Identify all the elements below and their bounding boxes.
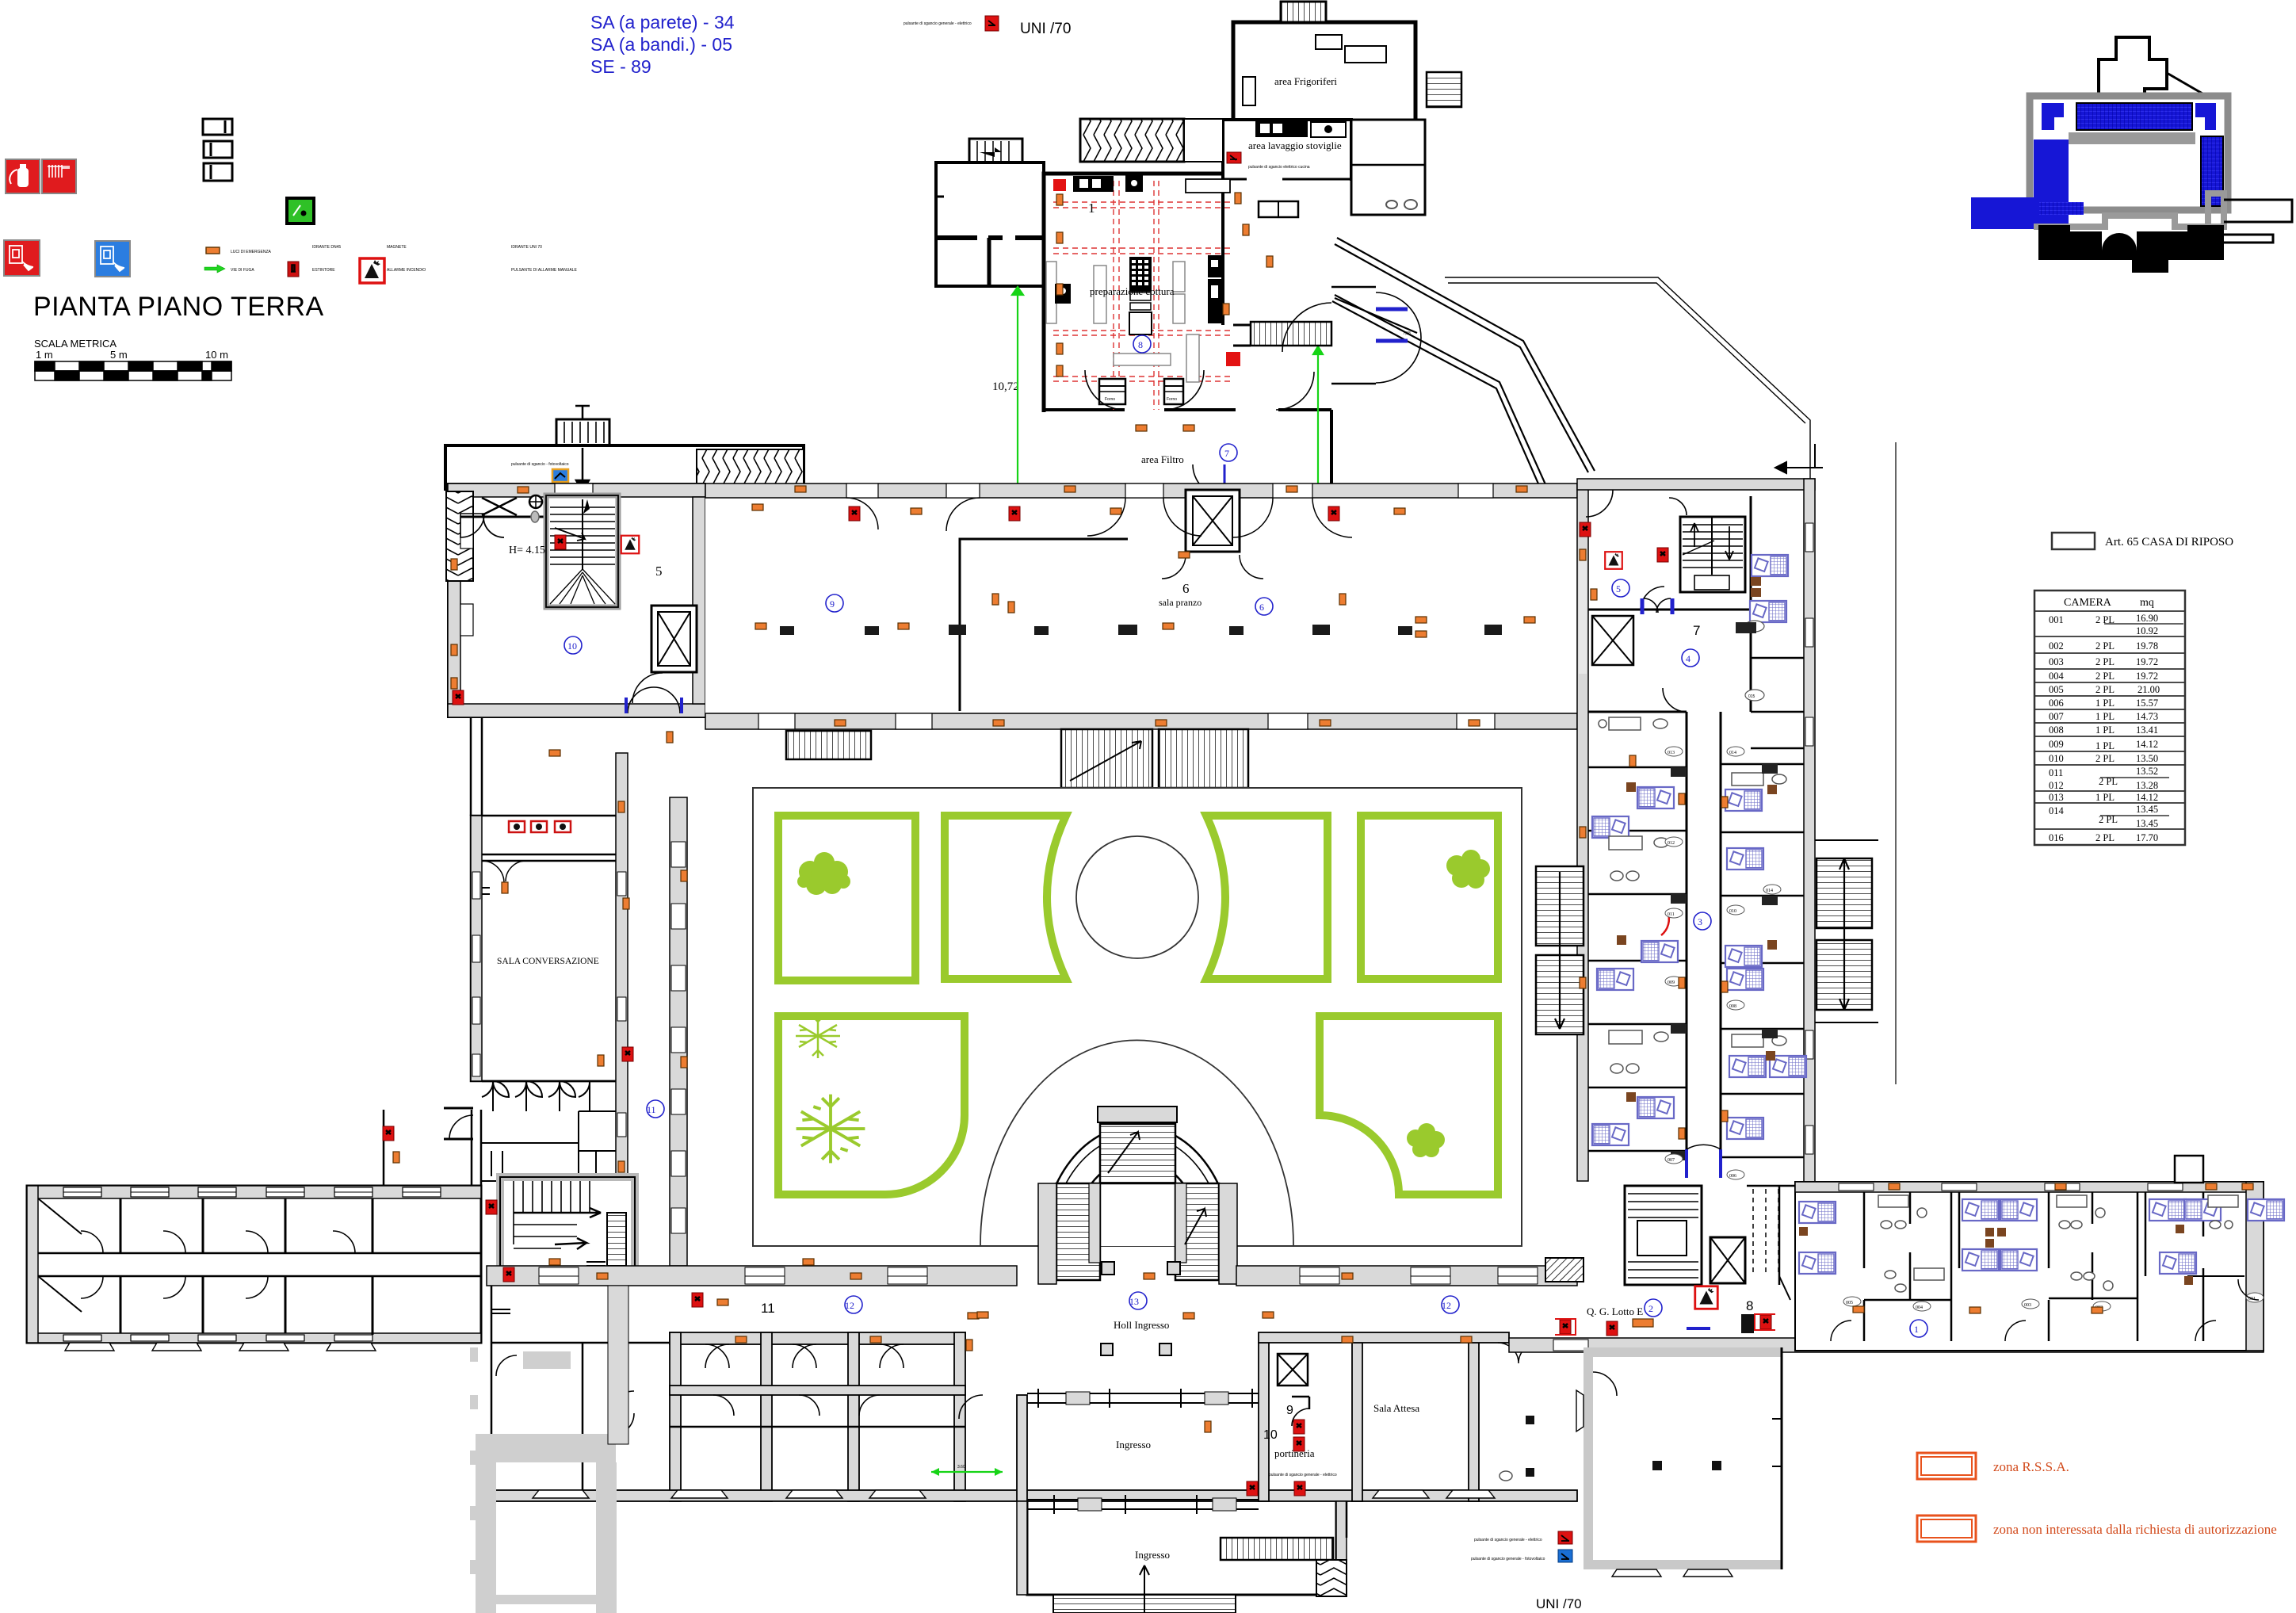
svg-text:VIE DI FUGA: VIE DI FUGA: [231, 268, 254, 273]
svg-text:12: 12: [1442, 1300, 1451, 1311]
svg-text:007: 007: [2049, 711, 2064, 722]
svg-text:Ingresso: Ingresso: [1116, 1439, 1151, 1451]
svg-text:MAGNETE: MAGNETE: [387, 245, 407, 250]
svg-text:003: 003: [2024, 1303, 2031, 1308]
svg-text:pulsante di sgancio - fotovolt: pulsante di sgancio - fotovoltaico: [511, 462, 569, 467]
svg-text:8: 8: [1138, 339, 1143, 350]
svg-text:2 PL: 2 PL: [2095, 684, 2115, 695]
svg-text:17.70: 17.70: [2136, 832, 2158, 843]
svg-text:012: 012: [2049, 780, 2064, 791]
svg-text:007: 007: [1668, 1158, 1675, 1163]
svg-text:011: 011: [1668, 912, 1675, 917]
svg-text:9: 9: [1286, 1404, 1293, 1417]
svg-text:011: 011: [2049, 767, 2063, 778]
svg-text:2 PL: 2 PL: [2095, 640, 2115, 652]
svg-text:SA (a bandi.) - 05: SA (a bandi.) - 05: [590, 34, 732, 55]
svg-text:009: 009: [2049, 739, 2064, 750]
svg-text:SE - 89: SE - 89: [590, 56, 651, 77]
svg-text:8: 8: [1746, 1298, 1753, 1313]
svg-text:003: 003: [2049, 656, 2064, 667]
svg-text:015: 015: [1748, 694, 1755, 699]
svg-text:pulsante di sgancio generale -: pulsante di sgancio generale - fotovolta…: [1471, 1557, 1545, 1561]
svg-text:6: 6: [1182, 581, 1190, 596]
svg-text:11: 11: [761, 1301, 775, 1316]
svg-text:3.60: 3.60: [957, 1465, 965, 1470]
svg-text:5: 5: [655, 564, 663, 579]
svg-text:LUCI DI EMERGENZA: LUCI DI EMERGENZA: [231, 250, 272, 254]
svg-text:9: 9: [830, 598, 835, 610]
svg-text:014: 014: [1766, 889, 1773, 893]
svg-text:2 PL: 2 PL: [2099, 814, 2118, 825]
svg-text:ALLARME INCENDIO: ALLARME INCENDIO: [387, 268, 426, 273]
svg-text:14.73: 14.73: [2136, 711, 2158, 722]
svg-text:5: 5: [1616, 583, 1621, 594]
svg-text:1 PL: 1 PL: [2095, 724, 2115, 736]
svg-text:1 PL: 1 PL: [2095, 740, 2115, 751]
svg-text:19.72: 19.72: [2136, 656, 2158, 667]
svg-text:5 m: 5 m: [110, 349, 128, 361]
svg-text:ESTINTORE: ESTINTORE: [312, 268, 335, 273]
svg-text:CAMERA: CAMERA: [2064, 597, 2112, 609]
svg-text:012: 012: [1668, 841, 1675, 846]
svg-text:pulsante di sgancio elettrico: pulsante di sgancio elettrico cucina: [1248, 165, 1310, 170]
svg-text:Holl Ingresso: Holl Ingresso: [1114, 1319, 1169, 1331]
svg-text:2 PL: 2 PL: [2095, 832, 2115, 843]
svg-text:1: 1: [1914, 1324, 1919, 1335]
svg-text:zona non interessata dalla ric: zona non interessata dalla richiesta di …: [1993, 1522, 2277, 1537]
svg-text:14.12: 14.12: [2136, 792, 2158, 803]
svg-text:pulsante di sgancio generale -: pulsante di sgancio generale - elettrico: [904, 21, 972, 26]
svg-text:004: 004: [1916, 1305, 1923, 1310]
svg-text:7: 7: [1224, 448, 1229, 459]
svg-text:PIANTA PIANO TERRA: PIANTA PIANO TERRA: [33, 292, 324, 322]
svg-text:area Frigoriferi: area Frigoriferi: [1274, 75, 1337, 87]
svg-text:19.78: 19.78: [2136, 640, 2158, 652]
svg-text:009: 009: [1668, 980, 1675, 985]
svg-text:13.50: 13.50: [2136, 753, 2158, 764]
svg-text:14.12: 14.12: [2136, 739, 2158, 750]
svg-text:1 PL: 1 PL: [2095, 698, 2115, 709]
svg-text:010: 010: [1729, 909, 1736, 914]
svg-text:2 PL: 2 PL: [2095, 614, 2115, 625]
svg-text:SA (a parete) - 34: SA (a parete) - 34: [590, 12, 735, 32]
svg-text:sala pranzo: sala pranzo: [1159, 597, 1201, 608]
svg-text:13.41: 13.41: [2136, 724, 2158, 736]
svg-text:UNI /70: UNI /70: [1536, 1596, 1582, 1611]
svg-text:1 m: 1 m: [36, 349, 53, 361]
svg-text:Art. 65 CASA DI RIPOSO: Art. 65 CASA DI RIPOSO: [2105, 536, 2233, 548]
svg-text:10 m: 10 m: [205, 349, 228, 361]
svg-text:13.45: 13.45: [2136, 818, 2158, 829]
svg-text:002: 002: [2049, 640, 2064, 652]
svg-text:preparazione cottura: preparazione cottura: [1090, 285, 1175, 297]
svg-text:13.45: 13.45: [2136, 804, 2158, 815]
svg-text:PULSANTE DI ALLARME MANUALE: PULSANTE DI ALLARME MANUALE: [511, 268, 577, 273]
svg-text:Sala Attesa: Sala Attesa: [1373, 1402, 1419, 1414]
svg-text:3: 3: [1698, 916, 1702, 927]
svg-text:mq: mq: [2140, 597, 2154, 609]
svg-text:7: 7: [1693, 623, 1700, 638]
svg-text:13.52: 13.52: [2136, 766, 2158, 777]
svg-text:area Filtro: area Filtro: [1141, 453, 1184, 465]
svg-text:10: 10: [1263, 1428, 1278, 1442]
svg-text:008: 008: [2049, 724, 2064, 736]
svg-text:1 PL: 1 PL: [2095, 792, 2115, 803]
svg-text:11: 11: [647, 1104, 656, 1115]
svg-text:008: 008: [1729, 1004, 1736, 1009]
svg-text:IDRANTE UNI 70: IDRANTE UNI 70: [511, 245, 542, 250]
svg-text:005: 005: [1846, 1301, 1853, 1305]
svg-text:Forno: Forno: [1105, 397, 1115, 402]
svg-text:006: 006: [1729, 1174, 1736, 1179]
svg-text:pulsante di sgancio generale -: pulsante di sgancio generale - elettrico: [1474, 1538, 1542, 1542]
svg-text:2 PL: 2 PL: [2095, 671, 2115, 682]
svg-text:10: 10: [567, 640, 577, 652]
svg-text:pulsante di sgancio generale -: pulsante di sgancio generale - elettrico: [1269, 1473, 1337, 1477]
svg-text:014: 014: [2049, 805, 2065, 816]
svg-text:Forno: Forno: [1167, 397, 1177, 402]
svg-text:15.57: 15.57: [2136, 698, 2158, 709]
svg-text:10.92: 10.92: [2136, 625, 2158, 636]
svg-text:004: 004: [2049, 671, 2065, 682]
svg-text:10,72: 10,72: [992, 380, 1019, 393]
svg-text:13.28: 13.28: [2136, 780, 2158, 791]
svg-text:zona R.S.S.A.: zona R.S.S.A.: [1993, 1459, 2069, 1474]
svg-text:H= 4.15: H= 4.15: [509, 545, 545, 556]
svg-text:19.72: 19.72: [2136, 671, 2158, 682]
svg-text:Q. G. Lotto E: Q. G. Lotto E: [1587, 1305, 1643, 1317]
svg-text:7,38: 7,38: [1403, 331, 1411, 336]
svg-text:013: 013: [2049, 792, 2064, 803]
svg-text:IDRANTE DN45: IDRANTE DN45: [312, 245, 341, 250]
svg-text:2 PL: 2 PL: [2095, 656, 2115, 667]
svg-text:001: 001: [2049, 614, 2064, 625]
svg-text:010: 010: [2049, 753, 2064, 764]
svg-text:2: 2: [1648, 1303, 1653, 1314]
svg-text:014: 014: [1729, 751, 1736, 755]
svg-text:UNI /70: UNI /70: [1020, 21, 1071, 37]
svg-text:13: 13: [1129, 1296, 1139, 1307]
svg-text:16.90: 16.90: [2136, 613, 2158, 624]
svg-text:4: 4: [1686, 653, 1690, 664]
svg-text:1: 1: [1088, 201, 1095, 216]
svg-text:2 PL: 2 PL: [2099, 776, 2118, 787]
svg-text:12: 12: [845, 1300, 854, 1311]
svg-text:2 PL: 2 PL: [2095, 753, 2115, 764]
svg-text:21.00: 21.00: [2137, 684, 2160, 695]
svg-text:005: 005: [2049, 684, 2064, 695]
svg-text:area lavaggio stoviglie: area lavaggio stoviglie: [1248, 140, 1342, 151]
svg-text:016: 016: [2049, 832, 2064, 843]
svg-text:1 PL: 1 PL: [2095, 711, 2115, 722]
svg-text:SCALA METRICA: SCALA METRICA: [34, 338, 117, 350]
svg-text:SALA CONVERSAZIONE: SALA CONVERSAZIONE: [497, 957, 599, 966]
svg-text:006: 006: [2049, 698, 2064, 709]
svg-text:013: 013: [1668, 751, 1675, 755]
svg-text:Ingresso: Ingresso: [1135, 1549, 1170, 1561]
svg-text:6: 6: [1259, 602, 1264, 613]
